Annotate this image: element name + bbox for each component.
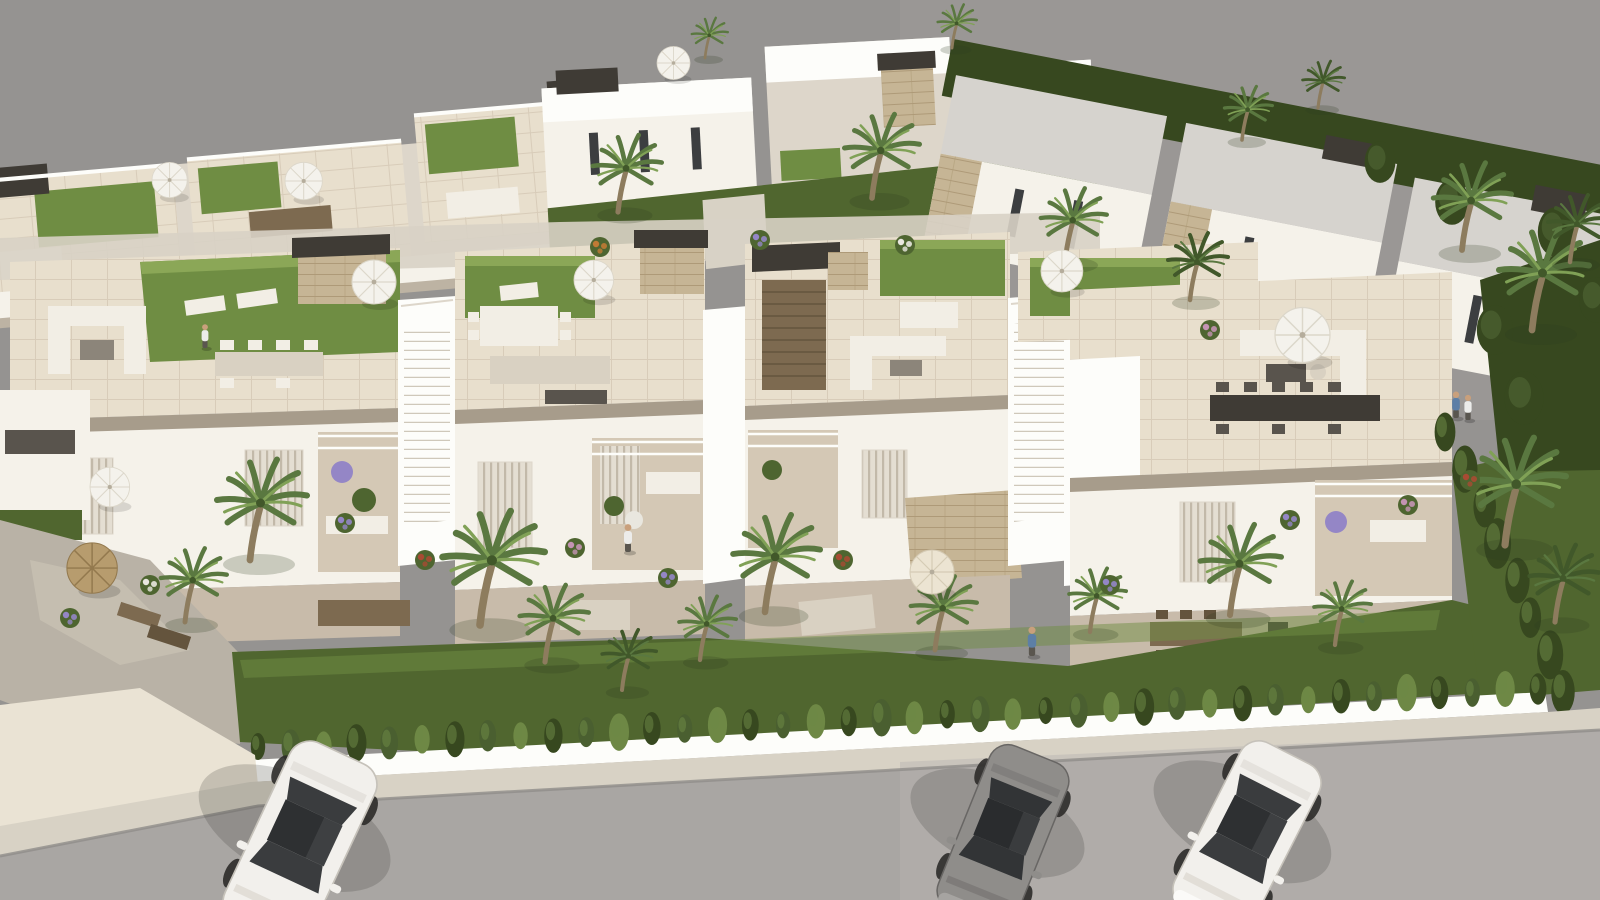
architectural-render: Aerial 3D render of a modern white resid… [0, 0, 1600, 900]
hedge-bush [708, 707, 727, 743]
pergola-roof [292, 234, 390, 258]
hedge-bush [380, 726, 398, 759]
hedge-bush [677, 714, 692, 743]
hedge-bush [872, 699, 892, 737]
cypress-bush [1505, 558, 1529, 604]
hedge-bush [1004, 698, 1021, 730]
flower-shrub [1200, 320, 1220, 340]
hedge-bush [940, 700, 955, 729]
tv-console [545, 390, 607, 404]
cypress-bush [1551, 670, 1574, 714]
hedge-bush [1366, 681, 1382, 711]
side-unit-terrace [0, 390, 90, 520]
flower-shrub [750, 230, 770, 250]
hedge-bush [445, 721, 464, 757]
balcony [318, 432, 400, 572]
hedge-bush [1431, 676, 1449, 709]
hedge-bush [578, 717, 594, 747]
hedge-bush [513, 722, 527, 749]
roof-box [556, 67, 619, 94]
hedge-bush [1465, 678, 1480, 707]
flower-shrub [60, 608, 80, 628]
render-image: Aerial 3D render of a modern white resid… [0, 0, 1600, 900]
rooftop-lawn [425, 117, 519, 175]
hedge-bush [1332, 679, 1350, 714]
roof-box [877, 51, 936, 71]
stair-tower [703, 306, 748, 584]
flower-shrub [1280, 510, 1300, 530]
flower-shrub [565, 538, 585, 558]
staircase [404, 324, 450, 527]
cypress-bush [1519, 597, 1541, 638]
hedge-bush [1397, 674, 1417, 712]
rooftop-lawn [198, 161, 282, 214]
stair-tower [398, 296, 456, 566]
garden-patch [780, 148, 841, 181]
hedge-bush [807, 704, 825, 739]
cypress-bush [1435, 413, 1456, 452]
hedge-bush [609, 713, 629, 751]
hedge-bush [544, 718, 562, 753]
hedge-bush [1202, 689, 1217, 718]
rooftop-lawn-highlight [465, 256, 595, 266]
dark-tree [1365, 141, 1396, 183]
balcony [592, 438, 705, 570]
hedge-bush [1496, 671, 1515, 707]
flower-shrub [1460, 470, 1480, 490]
outdoor-sofa [5, 430, 75, 454]
hedge-bush [1267, 684, 1284, 716]
hedge-bush [415, 725, 430, 754]
hedge-bush [841, 706, 857, 736]
staircase [1014, 318, 1064, 522]
pergola-roof [634, 230, 708, 248]
flower-shrub [658, 568, 678, 588]
hedge-bush [1530, 673, 1547, 705]
hedge-bush [1069, 693, 1087, 728]
townhouse-block-3 [745, 232, 1022, 640]
hedge-bush [1103, 692, 1119, 722]
flower-shrub [140, 575, 160, 595]
balcony [748, 430, 838, 548]
balcony [1315, 480, 1452, 596]
hedge-bush [643, 712, 661, 745]
hedge-bush [970, 696, 989, 732]
rooftop-sofa [490, 356, 610, 384]
rooftop-daybed [900, 302, 958, 328]
balcony-sofa [1370, 520, 1426, 542]
stone-support [828, 252, 868, 290]
balcony-plant [352, 488, 376, 512]
hedge-bush [346, 724, 366, 762]
balcony-plant [762, 460, 782, 480]
balcony-plant [604, 496, 624, 516]
flower-planter [331, 461, 353, 483]
flower-shrub [415, 550, 435, 570]
balcony-sofa [646, 472, 700, 494]
flower-shrub [1398, 495, 1418, 515]
flower-shrub [1100, 575, 1120, 595]
flower-shrub [895, 235, 915, 255]
patio-dining-table [318, 600, 410, 626]
rooftop-dining-set [468, 306, 571, 346]
dark-tree [1504, 371, 1543, 424]
hedge-bush [1233, 685, 1252, 721]
dark-tree [1477, 305, 1513, 354]
hedge-bush [776, 711, 790, 738]
hedge-bush [742, 709, 759, 741]
flower-shrub [335, 513, 355, 533]
hedge-bush [1168, 687, 1186, 720]
stone-stair-wall [881, 63, 936, 128]
hedge-bush [1134, 688, 1154, 726]
stair-housing [640, 240, 704, 294]
hedge-bush [1038, 697, 1052, 724]
hedge-bush [479, 720, 496, 752]
hedge-bush [1301, 686, 1315, 713]
flower-shrub [590, 237, 610, 257]
flower-planter [1325, 511, 1347, 533]
hedge-bush [906, 701, 924, 734]
louvered-window [862, 450, 907, 518]
flower-shrub [833, 550, 853, 570]
